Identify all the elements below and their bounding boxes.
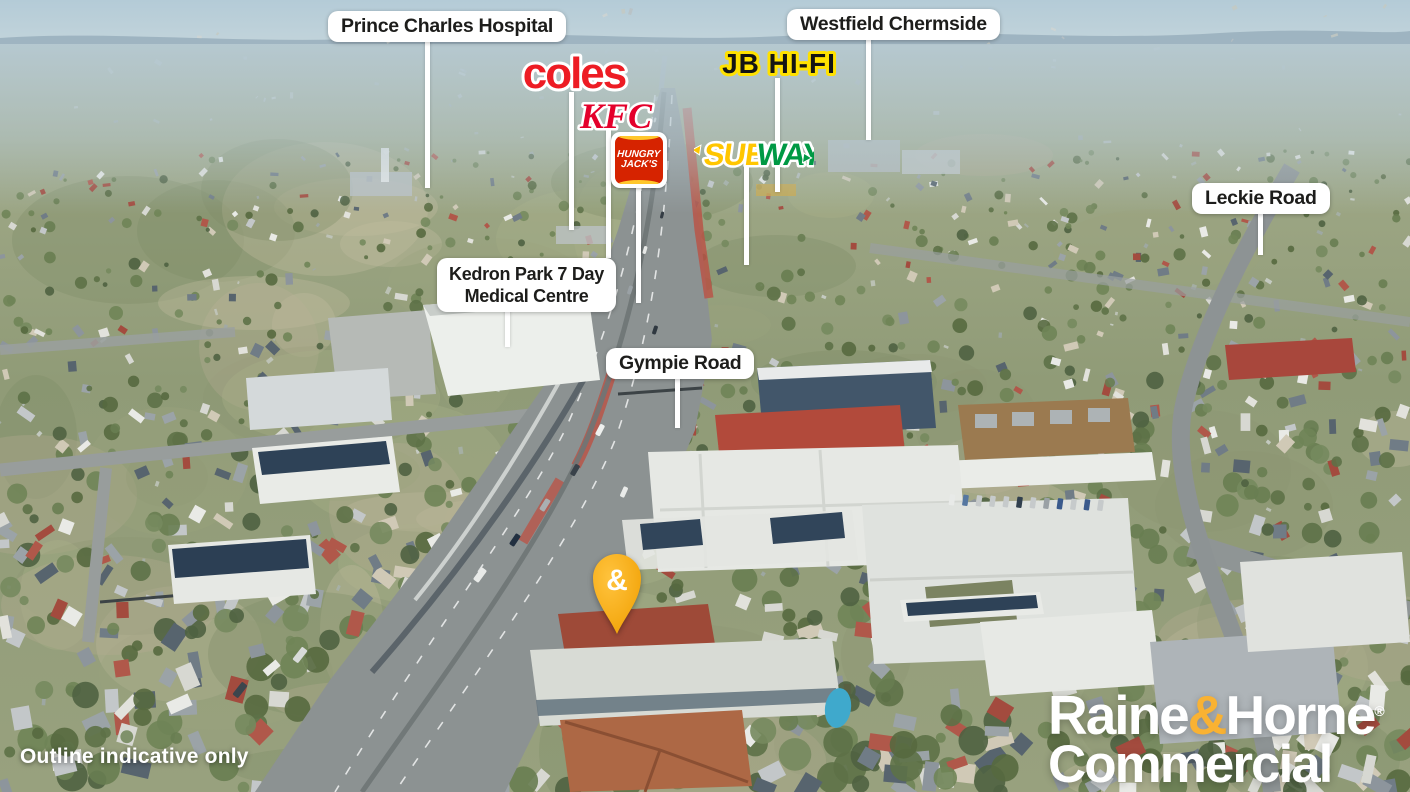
coles-logo: coles [504,46,644,100]
kfc-logo-text: KFC [579,96,653,136]
aerial-property-image: Prince Charles Hospital Westfield Cherms… [0,0,1410,792]
leader-line-hungry-jacks [636,183,641,303]
leader-line-leckie-road [1258,208,1263,255]
leader-line-prince-charles [425,40,430,188]
label-kedron-line2: Medical Centre [449,285,604,307]
hungry-jacks-line2: JACK'S [620,160,657,171]
location-pin-icon: & [588,548,646,636]
jb-hifi-logo-text: JB HI-FI [722,48,836,79]
raine-horne-commercial-logo: Raine&Horne® Commercial [1048,686,1385,790]
brand-commercial: Commercial [1048,740,1385,790]
jb-hifi-logo: JB HI-FI [714,42,844,84]
leader-line-gympie-road [675,374,680,428]
hungry-jacks-logo: HUNGRY JACK'S [611,132,667,188]
label-kedron-park-medical-centre: Kedron Park 7 Day Medical Centre [437,258,616,312]
label-leckie-road: Leckie Road [1192,183,1330,214]
registered-trademark-icon: ® [1374,703,1384,719]
brand-line1: Raine&Horne® [1048,686,1385,740]
hungry-jacks-logo-inner: HUNGRY JACK'S [615,136,663,184]
label-prince-charles-hospital: Prince Charles Hospital [328,11,566,42]
coles-logo-text: coles [523,49,626,98]
label-gympie-road: Gympie Road [606,348,754,379]
leader-line-subway [744,166,749,265]
pin-ampersand-glyph: & [606,564,628,597]
label-kedron-line1: Kedron Park 7 Day [449,263,604,285]
aerial-photo-background [0,0,1410,792]
label-westfield-chermside: Westfield Chermside [787,9,1000,40]
subway-logo: SUB WAY [694,134,814,174]
leader-line-westfield [866,36,871,140]
disclaimer-text: Outline indicative only [20,745,249,769]
